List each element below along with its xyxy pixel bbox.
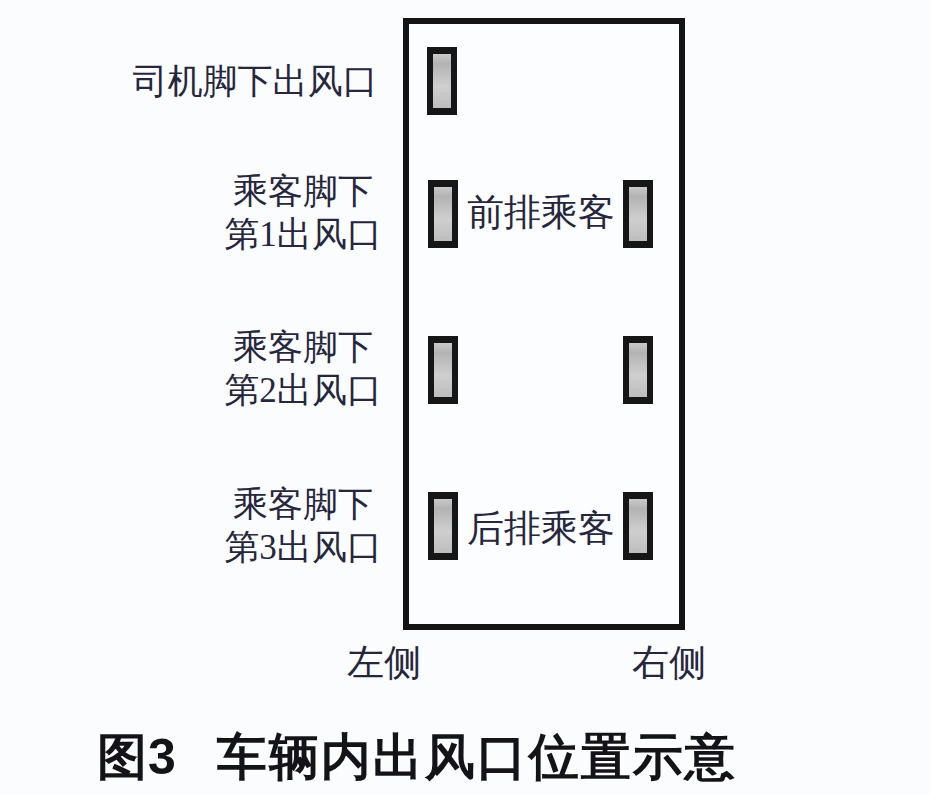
outlet-vent-face: [629, 343, 647, 397]
label-line: 第3出风口: [205, 526, 401, 569]
right-side-label: 右侧: [632, 641, 706, 685]
figure-title: 车辆内出风口位置示意: [217, 724, 737, 791]
label-line: 司机脚下出风口: [120, 60, 390, 103]
outlet-vent-face: [434, 187, 452, 241]
label-line: 乘客脚下: [205, 326, 401, 369]
passenger-outlet-1-left: [428, 180, 458, 248]
figure-caption: 图3 车辆内出风口位置示意: [97, 724, 737, 791]
passenger-outlet-2-right: [623, 336, 653, 404]
label-line: 第1出风口: [205, 213, 401, 256]
label-passenger-outlet-1: 乘客脚下 第1出风口: [205, 170, 401, 256]
label-passenger-outlet-3: 乘客脚下 第3出风口: [205, 483, 401, 569]
outlet-vent-face: [629, 499, 647, 553]
passenger-outlet-3-left: [428, 492, 458, 560]
outlet-vent-face: [434, 499, 452, 553]
label-line: 第2出风口: [205, 369, 401, 412]
outlet-vent-face: [629, 187, 647, 241]
passenger-outlet-1-right: [623, 180, 653, 248]
figure-canvas: 司机脚下出风口 乘客脚下 第1出风口 乘客脚下 第2出风口 乘客脚下 第3出风口…: [0, 0, 930, 794]
passenger-outlet-3-right: [623, 492, 653, 560]
passenger-outlet-2-left: [428, 336, 458, 404]
outlet-vent-face: [433, 54, 451, 108]
left-side-label: 左侧: [347, 641, 421, 685]
label-driver-foot-outlet: 司机脚下出风口: [120, 60, 390, 103]
figure-number: 图3: [97, 724, 177, 791]
outlet-vent-face: [434, 343, 452, 397]
label-line: 乘客脚下: [205, 170, 401, 213]
label-passenger-outlet-2: 乘客脚下 第2出风口: [205, 326, 401, 412]
rear-row-passengers-label: 后排乘客: [461, 509, 621, 549]
label-line: 乘客脚下: [205, 483, 401, 526]
front-row-passengers-label: 前排乘客: [461, 193, 621, 233]
driver-foot-outlet: [427, 47, 457, 115]
